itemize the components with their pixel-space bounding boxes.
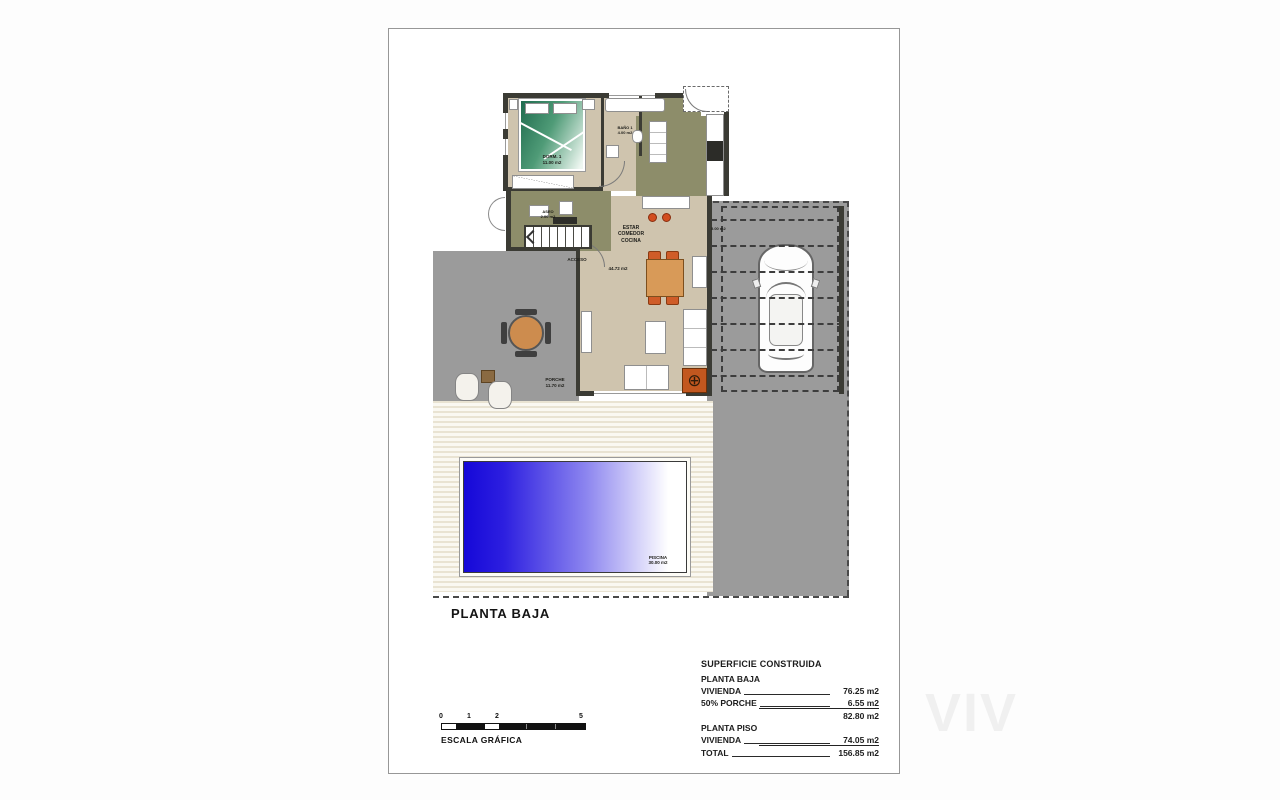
summary-row: 82.80 m2 bbox=[701, 709, 879, 721]
living-area-label: 44.72 m2 bbox=[600, 266, 636, 272]
pool-label: PISCINA 30.00 m2 bbox=[638, 555, 678, 566]
loveseat bbox=[624, 365, 669, 390]
leader-line bbox=[760, 706, 830, 707]
scale-segment bbox=[499, 724, 585, 729]
page: PISCINA 30.00 m2 bbox=[0, 0, 1280, 800]
bedroom-label: DORM. 1 11.00 m2 bbox=[527, 154, 577, 165]
planter bbox=[488, 381, 512, 409]
summary-row-value: 6.55 m2 bbox=[833, 698, 879, 708]
stove bbox=[707, 141, 723, 161]
pergola-beam bbox=[711, 271, 843, 273]
wall-parking-right bbox=[839, 206, 844, 394]
coffee-table bbox=[645, 321, 666, 354]
scale-minor-tick bbox=[555, 724, 556, 729]
drawing-sheet: PISCINA 30.00 m2 bbox=[388, 28, 900, 774]
window-left-2 bbox=[503, 139, 508, 155]
summary-row-label: 50% PORCHE bbox=[701, 698, 757, 708]
scale-segment bbox=[442, 724, 456, 729]
scale-bar: 0 1 2 5 ESCALA GRÁFICA bbox=[441, 713, 591, 749]
summary-row-label: VIVIENDA bbox=[701, 686, 741, 696]
fireplace-icon: ⊕ bbox=[682, 368, 707, 393]
scale-tick: 1 bbox=[467, 713, 471, 720]
summary-row: 50% PORCHE 6.55 m2 bbox=[701, 696, 879, 708]
scale-minor-tick bbox=[526, 724, 527, 729]
wall-hall-left bbox=[506, 189, 511, 251]
aseo-toilet bbox=[559, 201, 573, 215]
window-living-bottom bbox=[594, 391, 686, 396]
boundary-bottom bbox=[433, 596, 849, 598]
plan-title: PLANTA BAJA bbox=[451, 606, 550, 621]
pillow bbox=[525, 103, 549, 114]
scale-segment bbox=[470, 724, 485, 729]
summary-table: SUPERFICIE CONSTRUIDA PLANTA BAJA VIVIEN… bbox=[701, 659, 879, 758]
summary-row-label: PLANTA PISO bbox=[701, 723, 757, 733]
porch-chair bbox=[515, 351, 537, 357]
leader-line bbox=[744, 694, 830, 695]
summary-row: TOTAL 156.85 m2 bbox=[701, 746, 879, 758]
summary-row-value: 156.85 m2 bbox=[833, 748, 879, 758]
pergola-beam bbox=[711, 245, 843, 247]
summary-row-value: 82.80 m2 bbox=[833, 711, 879, 721]
pergola-beam bbox=[711, 219, 843, 221]
pool: PISCINA 30.00 m2 bbox=[463, 461, 687, 573]
porch-door-arc bbox=[488, 197, 505, 231]
pergola-beam bbox=[711, 349, 843, 351]
dining-table bbox=[646, 259, 684, 297]
aseo-label: ASEO 2.00 m2 bbox=[535, 209, 561, 219]
sideboard-left bbox=[581, 311, 592, 353]
porch-label: PORCHE 11.70 m2 bbox=[535, 377, 575, 388]
living-label: ESTAR COMEDOR COCINA bbox=[607, 225, 655, 244]
nightstand-right bbox=[582, 99, 595, 110]
summary-row-label: TOTAL bbox=[701, 748, 729, 758]
leader-line bbox=[744, 743, 830, 744]
watermark: VIV bbox=[925, 682, 1018, 744]
boundary-right bbox=[847, 201, 849, 596]
summary-row-label: VIVIENDA bbox=[701, 735, 741, 745]
stool bbox=[648, 213, 657, 222]
summary-title: SUPERFICIE CONSTRUIDA bbox=[701, 659, 879, 669]
pillow bbox=[553, 103, 577, 114]
sofa bbox=[683, 309, 707, 366]
summary-row: PLANTA BAJA bbox=[701, 672, 879, 684]
summary-row-label: PLANTA BAJA bbox=[701, 674, 760, 684]
acceso-label: ACCESO bbox=[561, 257, 593, 263]
pergola-beam bbox=[711, 375, 843, 377]
pergola-area-label: 5.00 m2 bbox=[711, 226, 735, 231]
kitchen-counter-left bbox=[649, 121, 667, 163]
porch-chair bbox=[545, 322, 551, 344]
toilet bbox=[606, 145, 619, 158]
summary-row-value: 74.05 m2 bbox=[833, 735, 879, 745]
scale-tick: 2 bbox=[495, 713, 499, 720]
bathtub bbox=[605, 98, 665, 112]
scale-bar-label: ESCALA GRÁFICA bbox=[441, 735, 522, 745]
scale-segment bbox=[456, 724, 470, 729]
porch-chair bbox=[501, 322, 507, 344]
planter bbox=[455, 373, 479, 401]
summary-row: VIVIENDA 74.05 m2 bbox=[701, 733, 879, 745]
nightstand-left bbox=[509, 99, 518, 110]
scale-bar-segments bbox=[441, 723, 586, 730]
scale-segment bbox=[485, 724, 499, 729]
wall-living-left bbox=[576, 247, 580, 396]
leader-line bbox=[732, 756, 830, 757]
boundary-top bbox=[713, 201, 849, 203]
sideboard-right bbox=[692, 256, 707, 288]
pergola-outline bbox=[721, 206, 839, 392]
stool bbox=[662, 213, 671, 222]
wardrobe bbox=[512, 175, 574, 189]
pergola-beam bbox=[711, 323, 843, 325]
scale-tick: 5 bbox=[579, 713, 583, 720]
window-left-1 bbox=[503, 113, 508, 129]
scale-tick: 0 bbox=[439, 713, 443, 720]
porch-round-table bbox=[508, 315, 544, 351]
pergola-beam bbox=[711, 297, 843, 299]
summary-row: PLANTA PISO bbox=[701, 721, 879, 733]
bathroom-label: BAÑO 1 4.00 m2 bbox=[607, 125, 643, 135]
kitchen-island bbox=[642, 196, 690, 209]
summary-row: VIVIENDA 76.25 m2 bbox=[701, 684, 879, 696]
wall-kitchen-right bbox=[724, 114, 729, 196]
summary-row-value: 76.25 m2 bbox=[833, 686, 879, 696]
